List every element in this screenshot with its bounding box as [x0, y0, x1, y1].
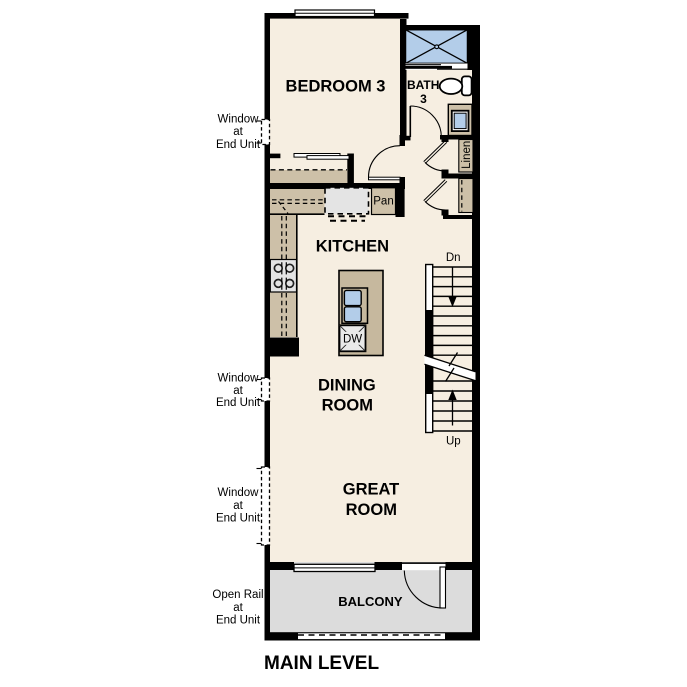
svg-text:DINING: DINING: [318, 376, 376, 394]
svg-text:KITCHEN: KITCHEN: [316, 237, 389, 255]
svg-text:at: at: [233, 500, 243, 512]
svg-text:Window: Window: [218, 373, 260, 385]
svg-text:Window: Window: [218, 113, 260, 125]
svg-text:3: 3: [420, 92, 427, 106]
svg-text:DW: DW: [343, 333, 362, 345]
svg-text:End Unit: End Unit: [216, 397, 261, 409]
svg-text:Window: Window: [218, 487, 260, 499]
svg-text:ROOM: ROOM: [322, 397, 373, 415]
svg-text:End Unit: End Unit: [216, 139, 261, 151]
svg-text:BATH: BATH: [407, 78, 439, 92]
svg-text:at: at: [233, 126, 243, 138]
svg-text:Dn: Dn: [446, 252, 461, 264]
svg-text:at: at: [233, 385, 243, 397]
svg-text:End Unit: End Unit: [216, 513, 261, 525]
svg-text:BEDROOM 3: BEDROOM 3: [286, 77, 386, 95]
svg-text:at: at: [233, 602, 243, 614]
svg-text:Linen: Linen: [461, 141, 473, 169]
svg-text:End Unit: End Unit: [216, 615, 261, 627]
svg-text:ROOM: ROOM: [346, 501, 397, 519]
svg-text:Pan: Pan: [373, 196, 393, 208]
svg-text:BALCONY: BALCONY: [338, 594, 403, 609]
svg-text:Open Rail: Open Rail: [212, 589, 263, 601]
svg-text:Up: Up: [446, 436, 461, 448]
svg-text:MAIN LEVEL: MAIN LEVEL: [264, 653, 379, 674]
svg-text:GREAT: GREAT: [343, 481, 400, 499]
